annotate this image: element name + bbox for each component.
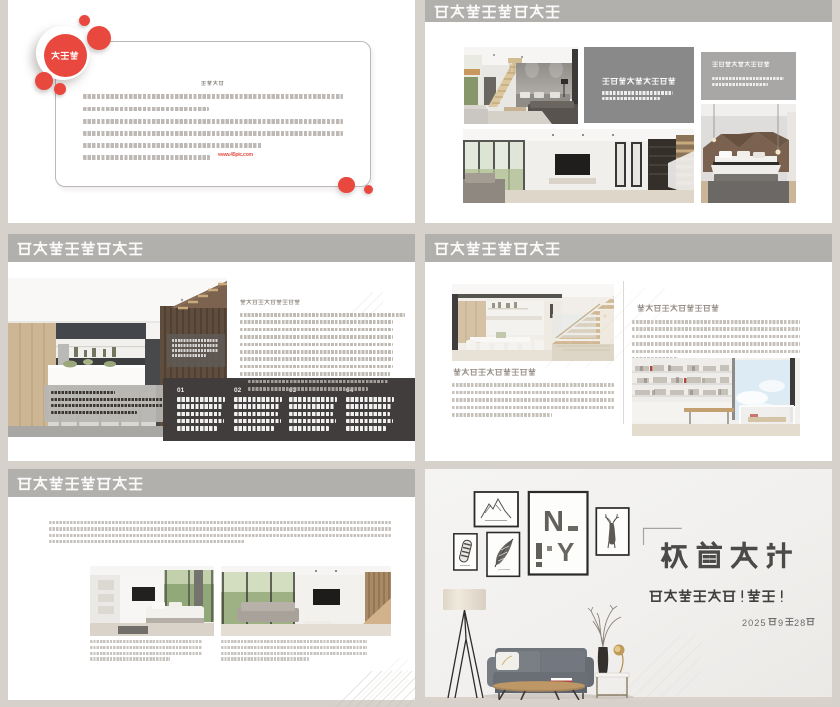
svg-text:2025: 2025: [742, 618, 766, 628]
svg-text:N: N: [543, 506, 564, 538]
svg-text:28: 28: [794, 618, 806, 628]
svg-text:9: 9: [778, 618, 783, 628]
svg-text:Y: Y: [557, 537, 574, 567]
